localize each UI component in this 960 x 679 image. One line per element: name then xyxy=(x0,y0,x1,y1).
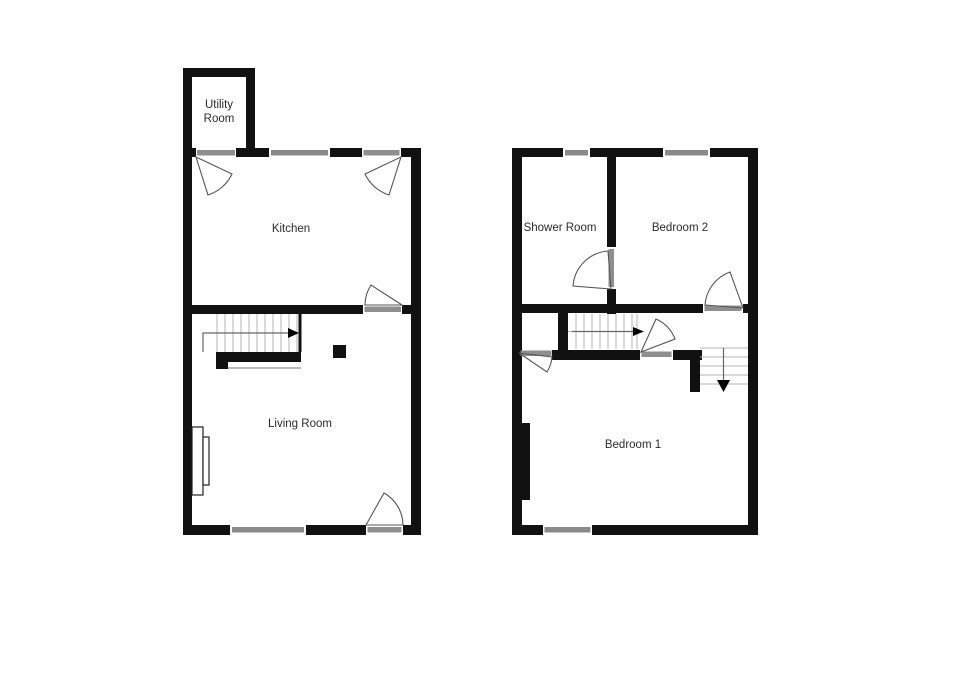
room-label-bedroom-2: Bedroom 2 xyxy=(652,222,708,234)
floorplan-svg: Utility Room Kitchen Living Room xyxy=(0,0,960,679)
kitchen-door-swing xyxy=(365,157,401,195)
arrow-down-icon xyxy=(717,380,730,392)
fireplace-outer xyxy=(192,427,203,495)
shower-room-window xyxy=(565,150,588,156)
room-label-shower-room: Shower Room xyxy=(524,222,597,234)
bedroom-2-window xyxy=(665,150,708,156)
floorplan-canvas: Utility Room Kitchen Living Room xyxy=(0,0,960,679)
ground-floor-plan: Utility Room Kitchen Living Room xyxy=(183,68,421,535)
room-label-living-room: Living Room xyxy=(268,418,332,430)
kitchen-window xyxy=(271,150,328,156)
stairwell-door-sill xyxy=(642,352,672,358)
bedroom-2-door-swing xyxy=(705,272,743,308)
room-label-bedroom-1: Bedroom 1 xyxy=(605,439,661,451)
stairs-direction-line xyxy=(203,333,289,352)
living-room-window xyxy=(232,527,304,533)
ground-floor-walls xyxy=(183,68,421,535)
fireplace-inner xyxy=(203,437,209,485)
ground-floor-windows xyxy=(232,150,328,533)
kitchen-living-door-sill xyxy=(365,307,402,313)
kitchen-living-door-swing xyxy=(365,285,402,305)
first-floor-stairs-down xyxy=(700,348,748,392)
utility-door-swing xyxy=(196,157,232,195)
room-label-kitchen: Kitchen xyxy=(272,223,310,235)
bedroom-1-window xyxy=(545,527,591,533)
living-room-door-swing xyxy=(366,493,403,525)
first-floor-stairs-up xyxy=(568,314,644,349)
room-label-utility-line1: Utility xyxy=(205,99,233,111)
stairwell-door-swing xyxy=(641,319,675,352)
first-floor-walls xyxy=(512,148,758,535)
first-floor-plan: Shower Room Bedroom 2 Bedroom 1 xyxy=(512,148,758,535)
living-room-fireplace xyxy=(192,427,209,495)
first-floor-windows xyxy=(545,150,709,533)
living-room-door-sill xyxy=(368,527,402,533)
arrow-right-icon xyxy=(633,327,644,336)
kitchen-door-sill xyxy=(364,150,400,156)
first-floor-door-sills xyxy=(521,249,742,357)
room-label-utility-line2: Room xyxy=(204,113,235,125)
utility-door-sill xyxy=(197,150,235,156)
shower-room-door-swing xyxy=(573,251,611,289)
